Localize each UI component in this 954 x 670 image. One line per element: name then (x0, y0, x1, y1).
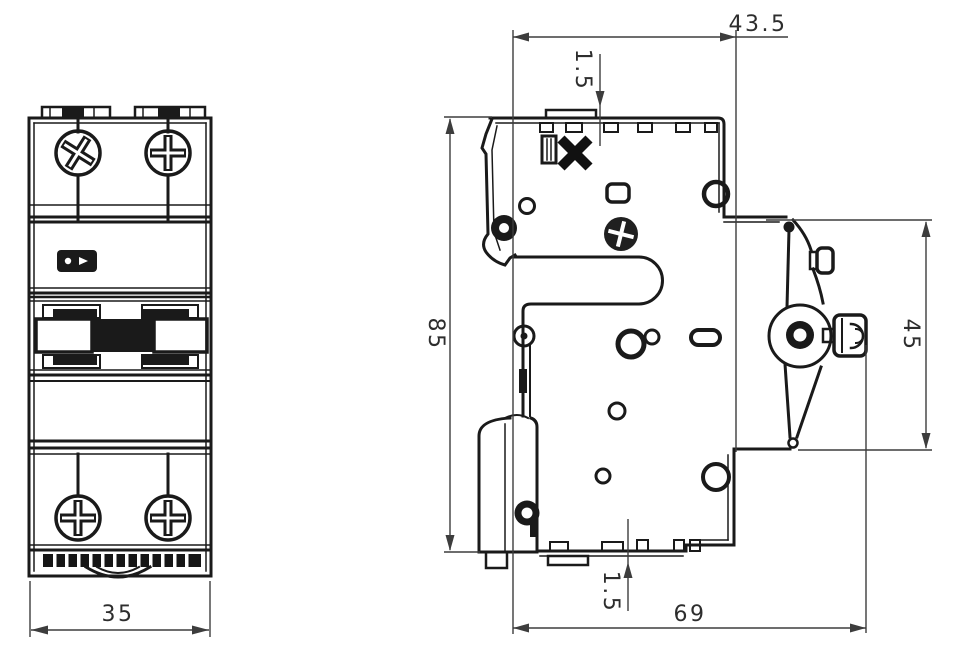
front-label-window (57, 250, 97, 272)
dimension-body-height-85: 85 (423, 117, 492, 552)
dim-label-top-1-5: 1.5 (570, 49, 595, 92)
front-lower-terminal-screws (56, 454, 190, 540)
side-front-canopy (482, 119, 535, 265)
side-toggle-detail (542, 136, 589, 167)
side-top-notches (540, 123, 717, 132)
front-view-drawing (29, 107, 211, 577)
dim-label-43-5: 43.5 (729, 12, 788, 37)
dim-label-69: 69 (674, 602, 707, 627)
side-clip-foot (486, 552, 507, 568)
side-bottom-edge (537, 449, 734, 565)
technical-drawing-page: 35 43.5 1.5 85 45 1.5 (0, 0, 954, 666)
dimension-top-width-43-5: 43.5 (513, 12, 788, 634)
side-bottom-rib (548, 556, 588, 565)
dimension-bottom-rib-1-5: 1.5 (598, 519, 633, 613)
side-din-clip (479, 415, 540, 568)
dim-label-45: 45 (898, 319, 923, 352)
front-toggle-handle (36, 319, 207, 352)
dim-label-35: 35 (102, 602, 135, 627)
side-internal-details (596, 182, 729, 490)
side-terminal-screw-head (834, 315, 866, 356)
dimension-front-width-35: 35 (30, 581, 210, 637)
front-top-terminal-tabs (42, 107, 205, 118)
front-din-clip-band (43, 554, 201, 577)
dim-label-bottom-1-5: 1.5 (598, 571, 623, 614)
side-view-drawing (479, 110, 866, 568)
dim-label-85: 85 (423, 318, 448, 351)
mcb-dimension-drawing: 35 43.5 1.5 85 45 1.5 (0, 0, 954, 666)
side-terminal-wing (724, 217, 866, 449)
side-lower-rivet (703, 464, 729, 490)
